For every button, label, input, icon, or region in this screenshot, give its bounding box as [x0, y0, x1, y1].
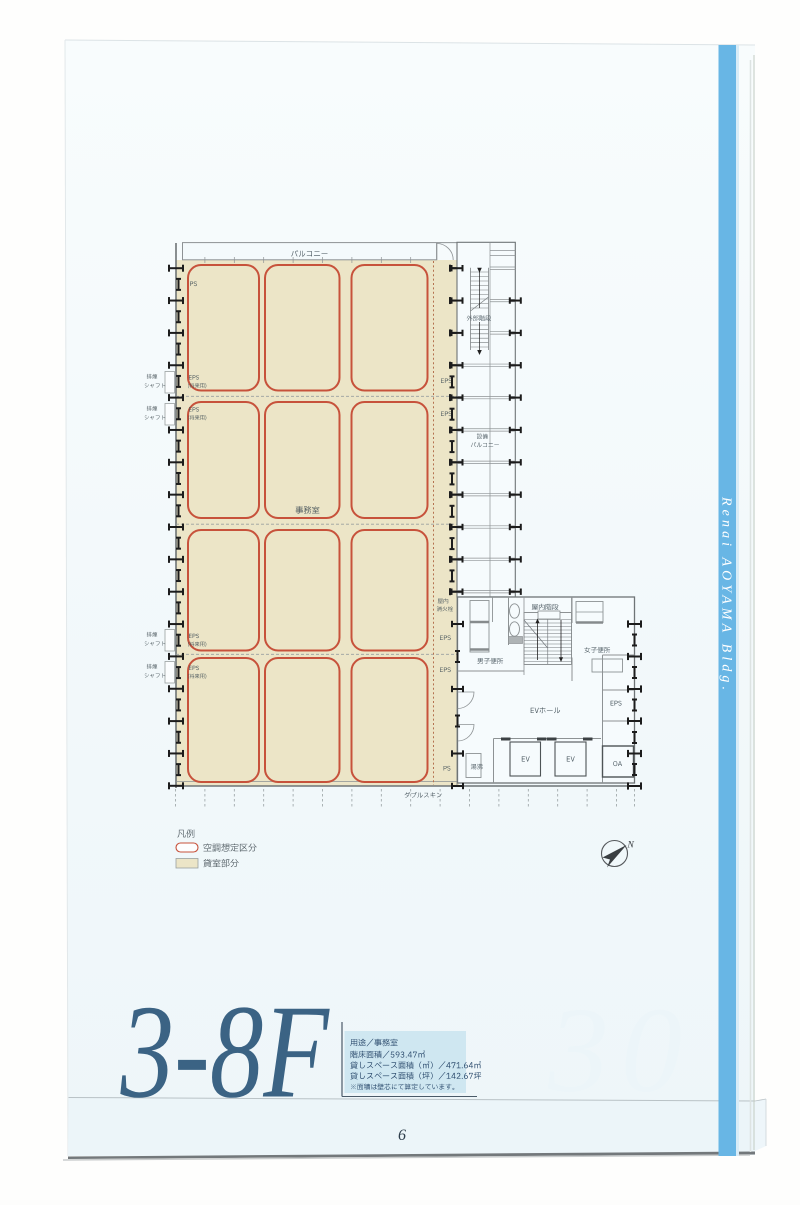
- svg-text:30: 30: [547, 983, 694, 1118]
- svg-text:3-8F: 3-8F: [120, 978, 331, 1126]
- svg-text:N: N: [627, 841, 635, 851]
- svg-text:6: 6: [398, 1127, 406, 1144]
- svg-text:Renai AOYAMA Bldg.: Renai AOYAMA Bldg.: [719, 496, 734, 694]
